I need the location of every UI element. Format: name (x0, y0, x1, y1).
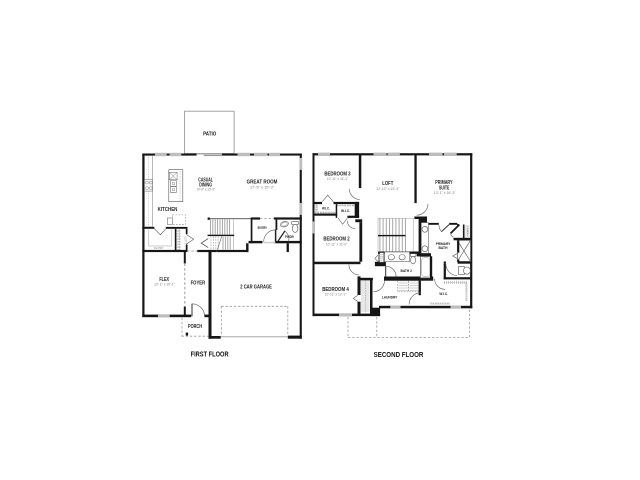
svg-text:PATIO: PATIO (203, 131, 216, 137)
svg-text:10'-11" x 11'-1": 10'-11" x 11'-1" (327, 177, 349, 181)
svg-text:PORCH: PORCH (188, 324, 202, 330)
svg-text:12'-10" x 15'-3": 12'-10" x 15'-3" (376, 187, 399, 191)
svg-text:FOYER: FOYER (191, 281, 206, 287)
svg-text:10'-0" x 15'-3": 10'-0" x 15'-3" (196, 188, 215, 192)
svg-text:SECOND FLOOR: SECOND FLOOR (374, 352, 424, 359)
svg-text:10'-11" x 11'-0": 10'-11" x 11'-0" (326, 242, 348, 246)
svg-text:PWDR: PWDR (285, 235, 294, 239)
svg-text:W.I.C.: W.I.C. (322, 207, 330, 211)
svg-text:ENTRY: ENTRY (258, 226, 268, 230)
svg-text:10'-11" x 12'-1": 10'-11" x 12'-1" (325, 293, 347, 297)
svg-text:W.I.C.: W.I.C. (439, 292, 448, 296)
svg-text:KITCHEN: KITCHEN (158, 207, 178, 213)
svg-text:LAUNDRY: LAUNDRY (382, 296, 398, 300)
svg-text:2 CAR GARAGE: 2 CAR GARAGE (240, 285, 272, 291)
svg-text:13'-1" x 16'-3": 13'-1" x 16'-3" (434, 191, 456, 195)
svg-text:FIRST FLOOR: FIRST FLOOR (191, 351, 229, 358)
svg-text:COATS: COATS (183, 236, 186, 244)
svg-text:BATH: BATH (439, 246, 448, 250)
svg-text:W.I.C.: W.I.C. (341, 209, 350, 213)
svg-text:10'-1" x 10'-1": 10'-1" x 10'-1" (154, 282, 175, 286)
svg-text:LINEN: LINEN (466, 228, 468, 235)
svg-text:PanTRY: PanTRY (154, 246, 163, 250)
svg-text:17'-5" x 15'-3": 17'-5" x 15'-3" (250, 186, 274, 190)
svg-text:BATH 2: BATH 2 (401, 269, 412, 273)
